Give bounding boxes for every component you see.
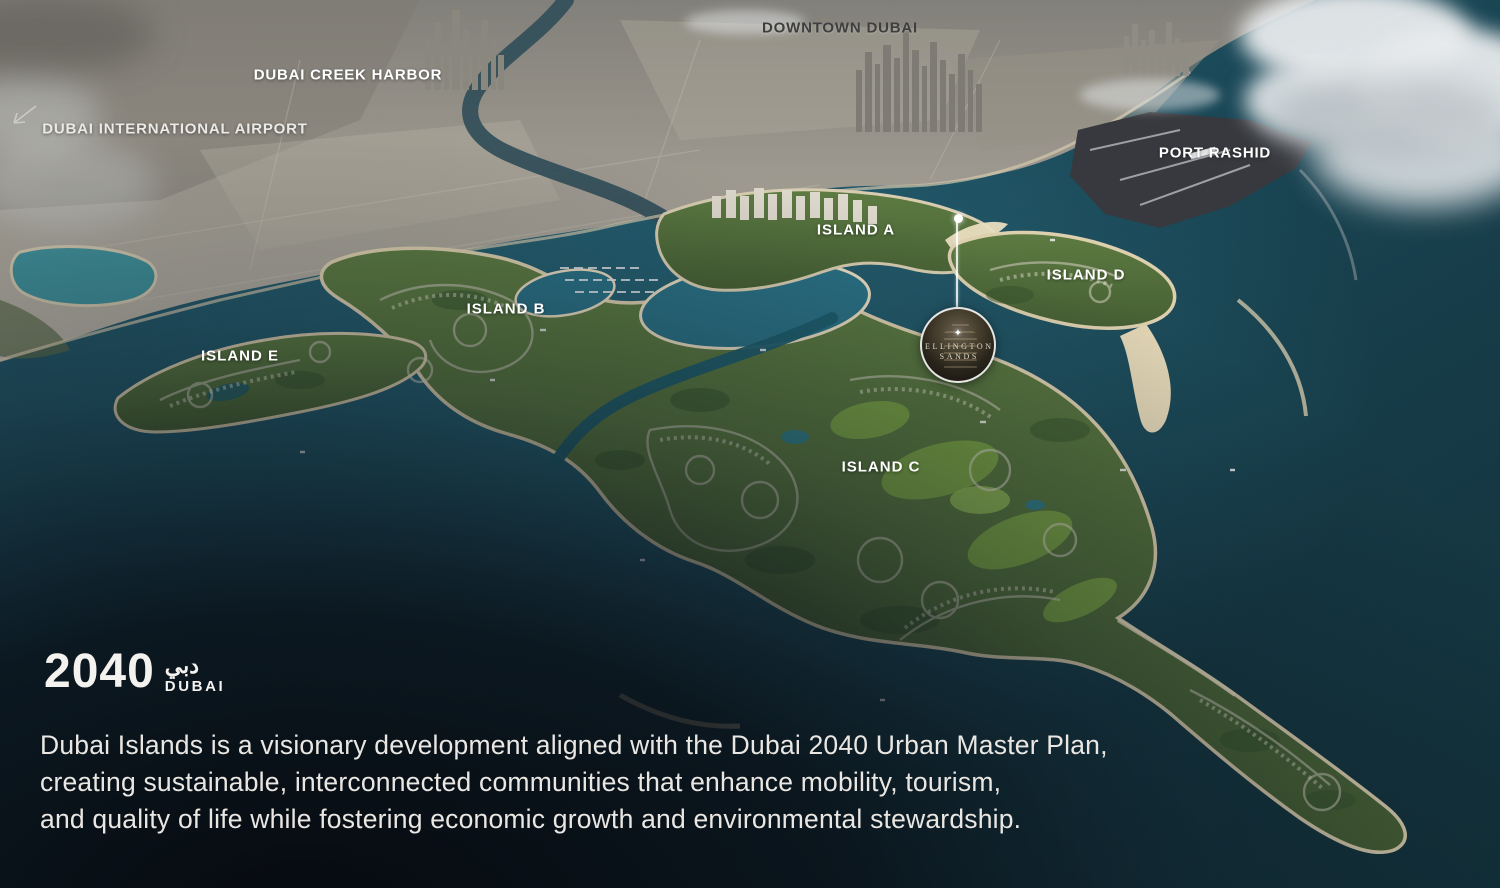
- description-paragraph: Dubai Islands is a visionary development…: [40, 727, 981, 838]
- marker-location-dot: [954, 214, 963, 223]
- logo-dubai-word: DUBAI: [165, 679, 226, 694]
- dubai-2040-logo: 2040 دبي DUBAI: [44, 650, 225, 694]
- label-island-c: ISLAND C: [842, 459, 921, 476]
- logo-2040-number: 2040: [44, 650, 155, 694]
- label-island-a: ISLAND A: [817, 222, 895, 239]
- dubai-islands-masterplan-poster: DOWNTOWN DUBAI DUBAI CREEK HARBOR DUBAI …: [0, 0, 1500, 888]
- ellington-sands-badge: ✦ ELLINGTON SANDS: [920, 307, 996, 383]
- label-downtown-dubai: DOWNTOWN DUBAI: [762, 20, 918, 37]
- badge-brand-line2: SANDS: [937, 352, 979, 362]
- sparkle-icon: ✦: [954, 329, 962, 339]
- label-dubai-creek-harbor: DUBAI CREEK HARBOR: [254, 67, 443, 84]
- paragraph-line-1: Dubai Islands is a visionary development…: [40, 727, 981, 764]
- logo-arabic-text: دبي: [165, 655, 226, 677]
- label-island-e: ISLAND E: [201, 348, 279, 365]
- label-dubai-international-airport: DUBAI INTERNATIONAL AIRPORT: [42, 121, 307, 138]
- label-island-b: ISLAND B: [467, 301, 546, 318]
- badge-brand-line1: ELLINGTON: [922, 342, 993, 352]
- label-port-rashid: PORT RASHID: [1159, 145, 1271, 162]
- paragraph-line-3: and quality of life while fostering econ…: [40, 801, 981, 838]
- marker-leader-line: [956, 222, 958, 308]
- label-island-d: ISLAND D: [1047, 267, 1126, 284]
- paragraph-line-2: creating sustainable, interconnected com…: [40, 764, 981, 801]
